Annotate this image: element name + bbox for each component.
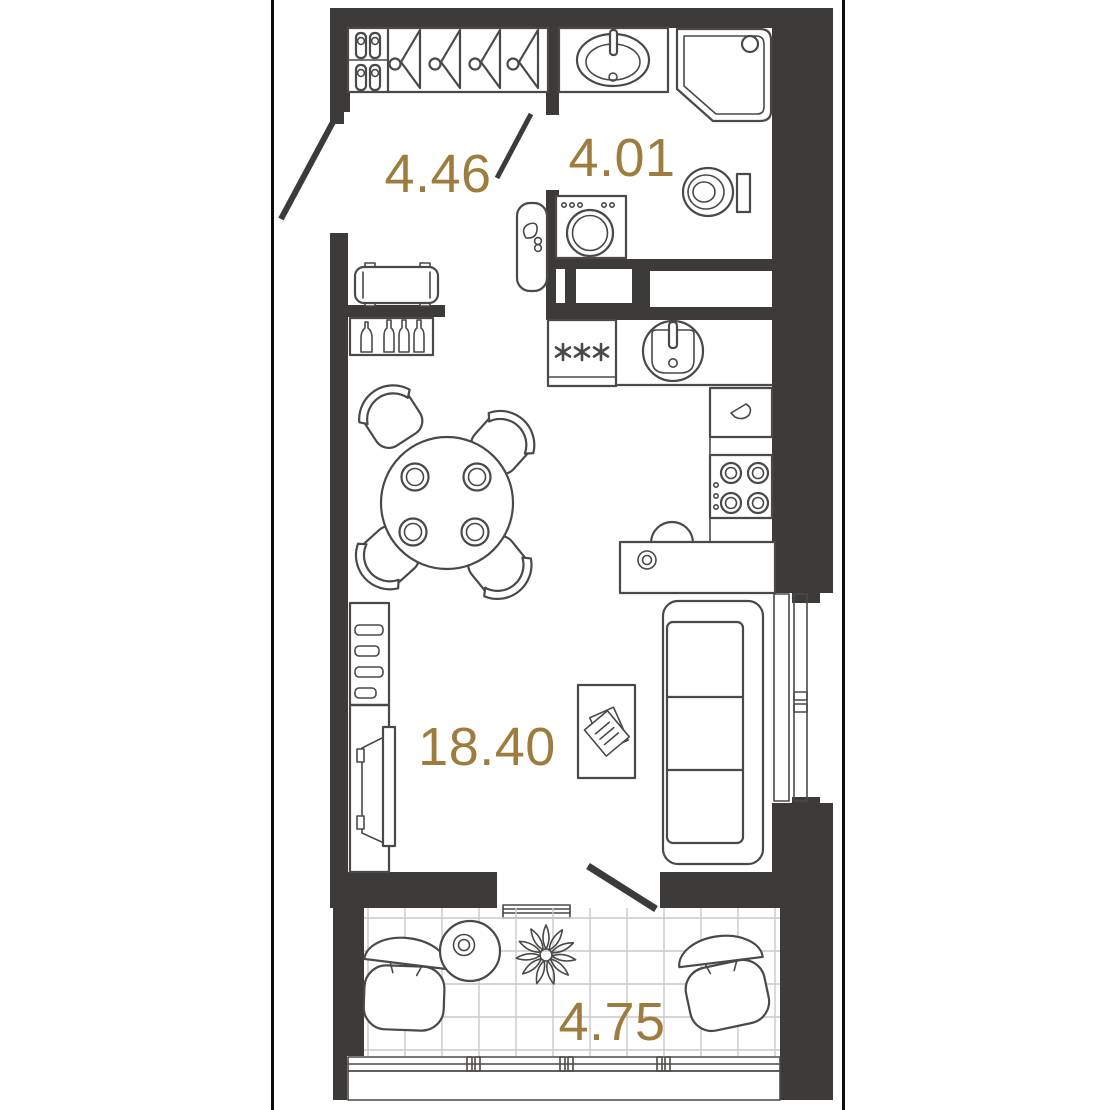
plot-border-left: [271, 0, 274, 1110]
hallway-area-label: 4.46: [384, 144, 491, 204]
shower-cabin-icon: [677, 29, 771, 121]
kettle-icon: [710, 388, 772, 437]
kitchen: [548, 320, 775, 593]
window-icon: [774, 594, 807, 801]
stove-icon: [710, 455, 772, 518]
armchair-icon: [676, 931, 774, 1036]
low-window-icon: [503, 905, 570, 918]
bathroom-door-icon: [497, 114, 531, 178]
floor-plan: 4.46: [0, 0, 1110, 1110]
plot-border-right: [842, 0, 845, 1110]
dining-table-icon: [345, 375, 546, 611]
plant-icon: [516, 925, 576, 985]
living-room: 18.40: [345, 375, 763, 872]
desk-chair-icon: [651, 522, 693, 543]
balcony-sill: [348, 1071, 780, 1100]
living-area-label: 18.40: [418, 717, 556, 777]
kitchen-sink-icon: [643, 321, 703, 381]
sofa-icon: [663, 601, 763, 864]
side-table-icon: [440, 921, 500, 981]
balcony-door-icon: [588, 866, 656, 909]
ventilation-shaft-icon: [556, 269, 643, 303]
balcony: 4.75: [348, 908, 780, 1100]
bench-icon: [355, 263, 438, 306]
balcony-area-label: 4.75: [558, 992, 665, 1052]
fridge-icon: [548, 320, 616, 386]
washing-machine-icon: [556, 196, 626, 258]
water-heater-icon: [517, 203, 547, 291]
entrance-door-icon: [281, 122, 333, 219]
bathroom-sink-icon: [559, 28, 668, 92]
wardrobe-icon: [348, 28, 548, 92]
bathroom-area-label: 4.01: [568, 128, 675, 188]
balcony-glazing-icon: [348, 1057, 780, 1100]
kitchen-desk-icon: [620, 542, 775, 593]
toilet-icon: [683, 168, 750, 216]
tv-icon: [357, 727, 395, 846]
coffee-table-icon: [578, 685, 636, 778]
floor-plan-page: 4.46: [0, 0, 1110, 1110]
bottle-shelf-icon: [350, 318, 433, 355]
